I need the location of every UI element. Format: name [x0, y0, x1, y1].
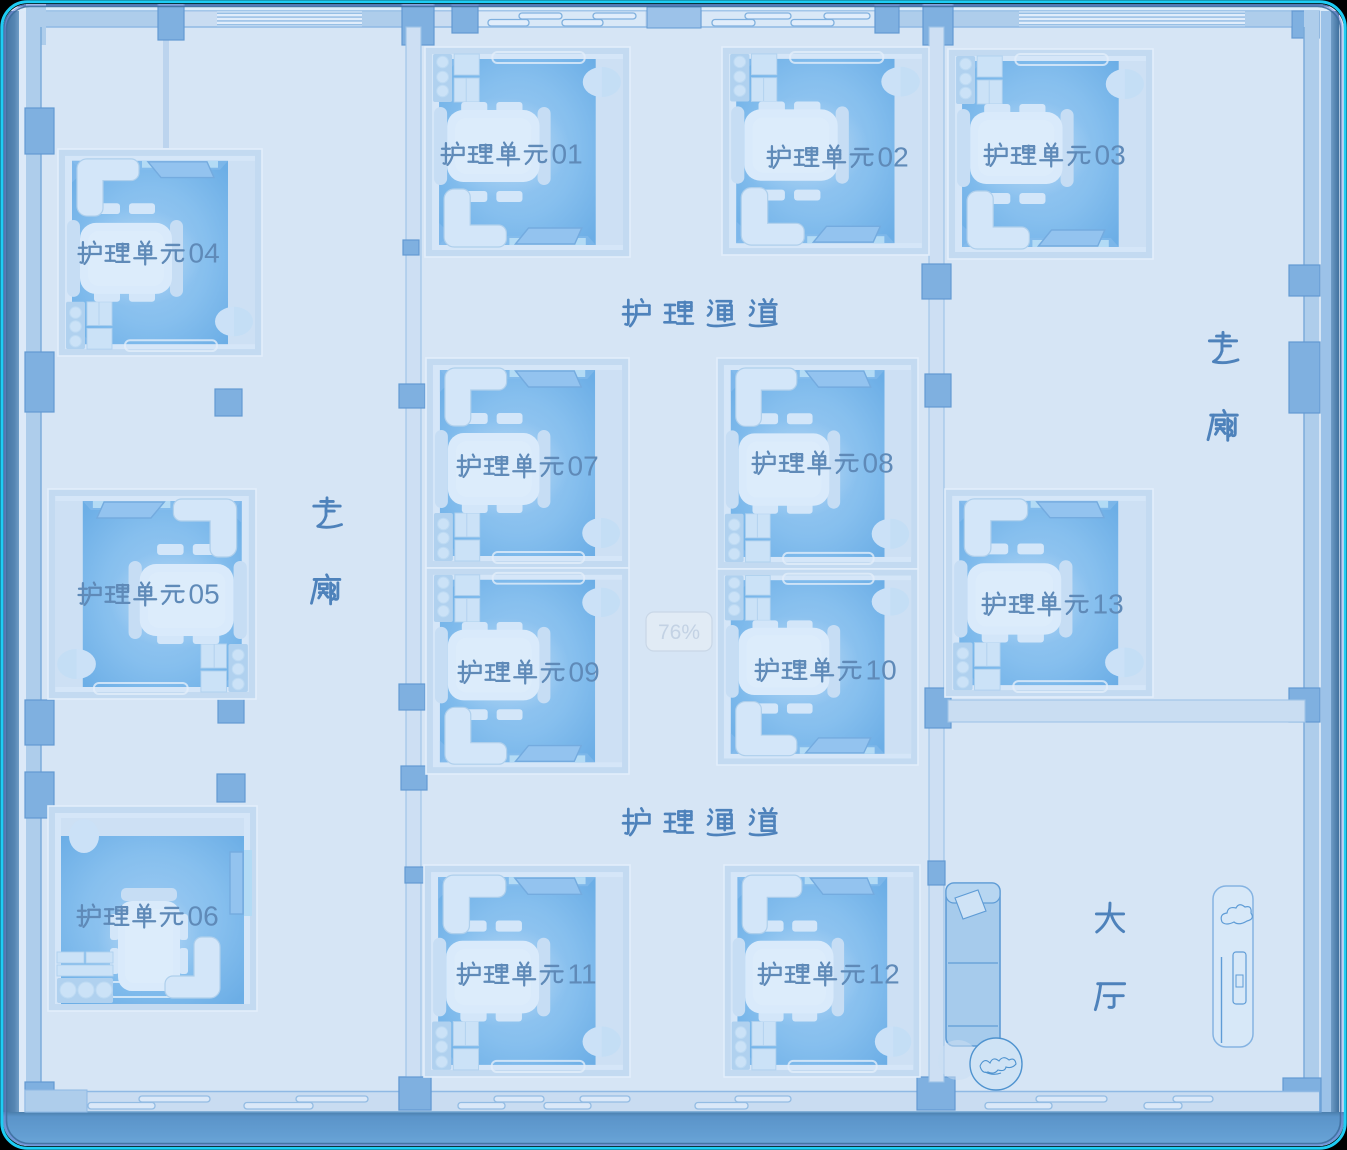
svg-text:06: 06	[188, 900, 219, 931]
svg-text:13: 13	[1093, 588, 1124, 619]
svg-text:09: 09	[569, 656, 600, 687]
svg-text:02: 02	[878, 141, 909, 172]
svg-text:03: 03	[1095, 139, 1126, 170]
svg-text:10: 10	[866, 654, 897, 685]
svg-text:11: 11	[568, 958, 597, 989]
svg-text:04: 04	[189, 237, 220, 268]
svg-text:12: 12	[869, 958, 900, 989]
svg-text:07: 07	[568, 450, 599, 481]
svg-text:05: 05	[189, 578, 220, 609]
svg-text:08: 08	[863, 447, 894, 478]
svg-text:01: 01	[552, 138, 583, 169]
svg-text:76%: 76%	[658, 621, 700, 644]
